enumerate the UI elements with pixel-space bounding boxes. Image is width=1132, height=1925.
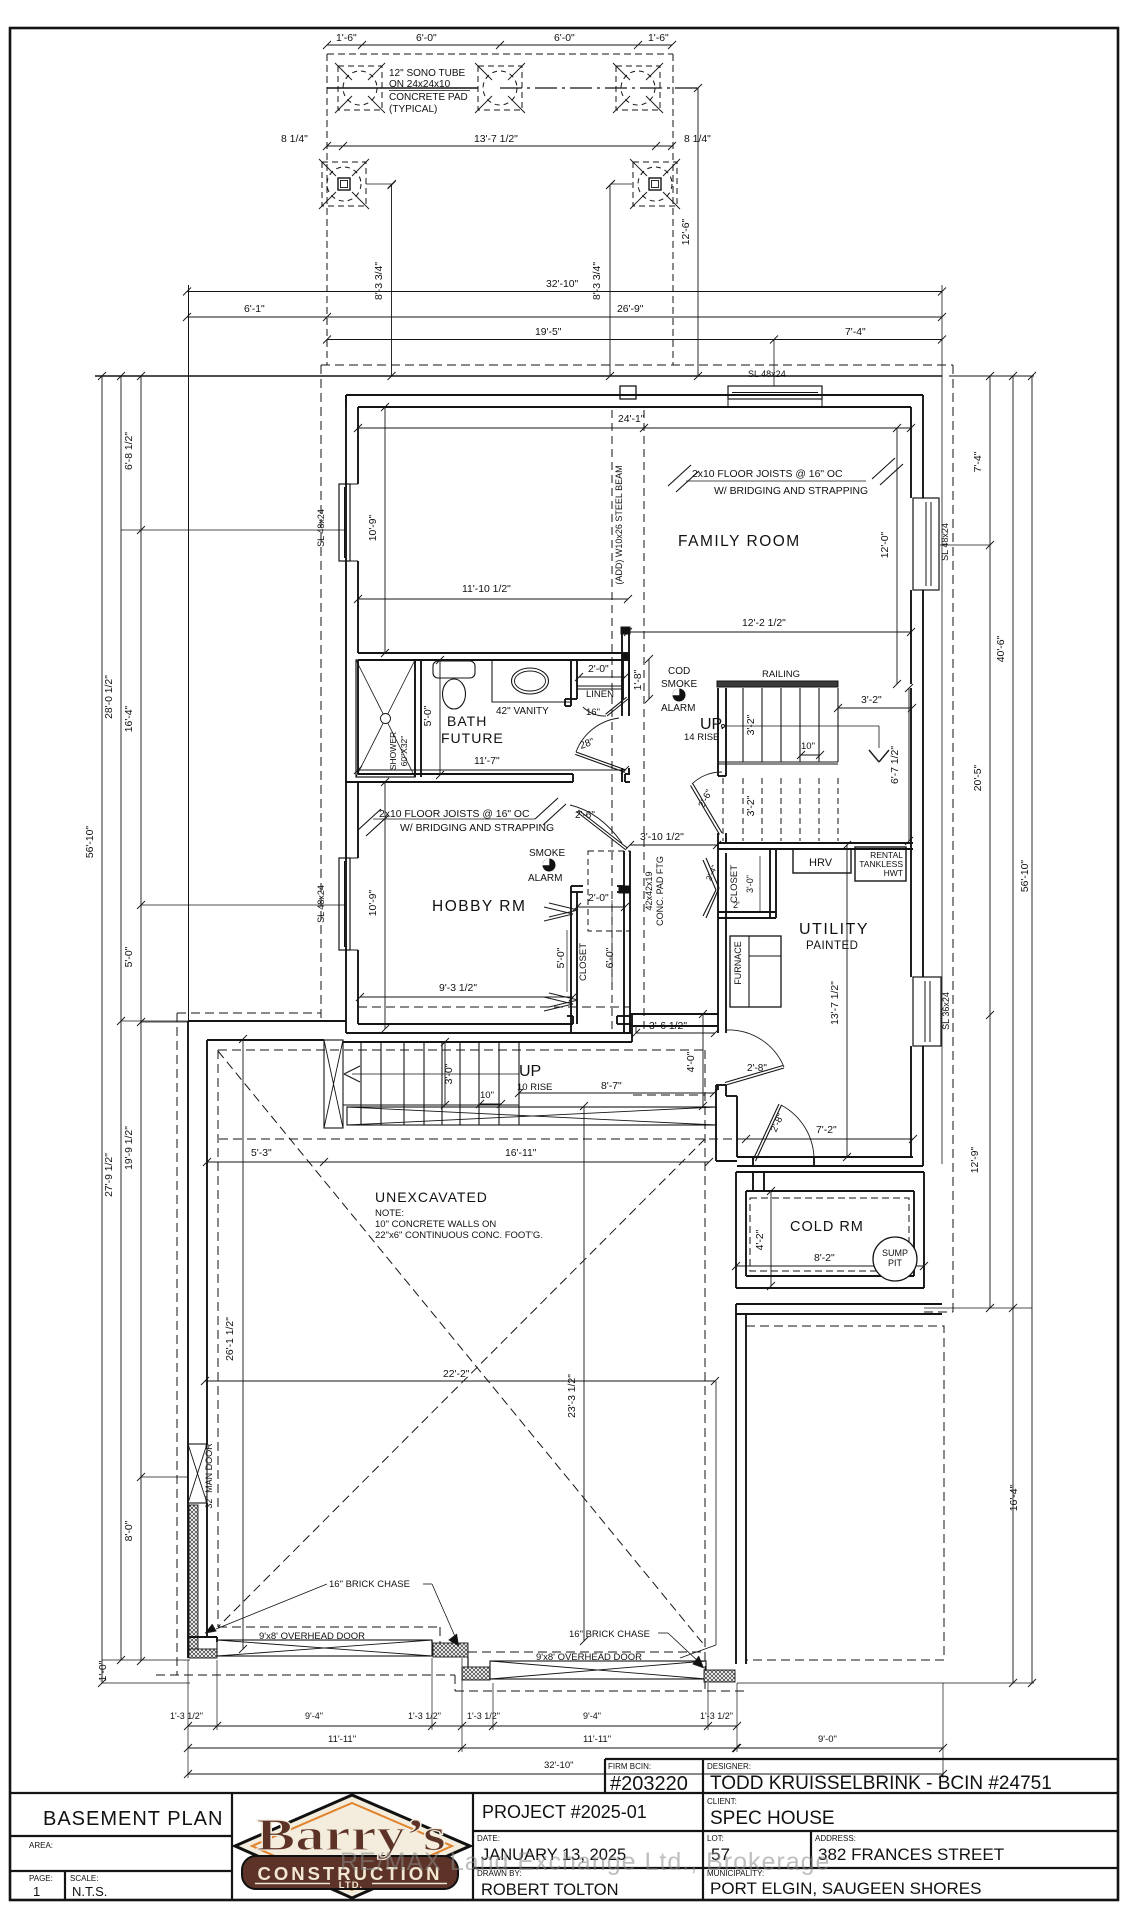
svg-text:4'-2": 4'-2" bbox=[755, 1229, 766, 1250]
svg-text:60"X32": 60"X32" bbox=[399, 736, 409, 767]
svg-text:CLOSET: CLOSET bbox=[578, 943, 589, 981]
svg-text:32" MAN DOOR: 32" MAN DOOR bbox=[204, 1443, 214, 1509]
svg-text:26'-1 1/2": 26'-1 1/2" bbox=[225, 1317, 236, 1361]
svg-text:#203220: #203220 bbox=[610, 1773, 688, 1795]
svg-text:10'-9": 10'-9" bbox=[368, 514, 379, 541]
svg-text:20'-5": 20'-5" bbox=[973, 764, 984, 791]
svg-text:5'-0": 5'-0" bbox=[423, 705, 434, 726]
svg-text:2x10 FLOOR JOISTS @ 16" OC: 2x10 FLOOR JOISTS @ 16" OC bbox=[379, 809, 530, 820]
svg-text:19'-5": 19'-5" bbox=[535, 327, 562, 338]
svg-text:ALARM: ALARM bbox=[528, 873, 562, 884]
svg-text:CLIENT:: CLIENT: bbox=[707, 1797, 737, 1806]
svg-text:AREA:: AREA: bbox=[29, 1841, 53, 1850]
svg-text:8'-3 3/4": 8'-3 3/4" bbox=[592, 262, 603, 300]
svg-text:UP.: UP. bbox=[700, 716, 725, 733]
svg-text:9'-0": 9'-0" bbox=[818, 1734, 837, 1745]
svg-text:3'-2": 3'-2" bbox=[746, 714, 757, 735]
svg-text:3'-0": 3'-0" bbox=[745, 875, 755, 893]
svg-text:SMOKE: SMOKE bbox=[661, 679, 697, 690]
svg-text:27'-9 1/2": 27'-9 1/2" bbox=[104, 1153, 115, 1197]
svg-text:42x42x19: 42x42x19 bbox=[644, 871, 654, 910]
svg-text:5'-0": 5'-0" bbox=[124, 946, 135, 967]
svg-text:ADDRESS:: ADDRESS: bbox=[815, 1834, 856, 1843]
svg-text:PORT ELGIN, SAUGEEN SHORES: PORT ELGIN, SAUGEEN SHORES bbox=[710, 1879, 981, 1898]
svg-text:40'-6": 40'-6" bbox=[996, 635, 1007, 662]
svg-text:1'-8": 1'-8" bbox=[633, 669, 644, 690]
svg-text:13'-7 1/2": 13'-7 1/2" bbox=[474, 134, 518, 145]
svg-text:TODD KRUISSELBRINK - BCIN #247: TODD KRUISSELBRINK - BCIN #24751 bbox=[710, 1773, 1052, 1794]
svg-text:9'-3 1/2": 9'-3 1/2" bbox=[439, 983, 477, 994]
svg-text:10 RISE: 10 RISE bbox=[517, 1082, 552, 1093]
svg-text:N.T.S.: N.T.S. bbox=[72, 1884, 107, 1899]
svg-text:1'-3 1/2": 1'-3 1/2" bbox=[467, 1711, 500, 1721]
svg-text:6'-1": 6'-1" bbox=[244, 304, 265, 315]
svg-text:BATH: BATH bbox=[447, 713, 487, 729]
svg-text:16" BRICK CHASE: 16" BRICK CHASE bbox=[329, 1579, 410, 1590]
svg-text:6'-0": 6'-0" bbox=[605, 947, 616, 968]
svg-text:PAINTED: PAINTED bbox=[806, 940, 859, 952]
svg-text:23'-3 1/2": 23'-3 1/2" bbox=[567, 1374, 578, 1418]
svg-text:8'-2": 8'-2" bbox=[814, 1253, 835, 1264]
svg-text:16": 16" bbox=[586, 707, 600, 718]
svg-text:32'-10": 32'-10" bbox=[546, 279, 579, 290]
svg-text:16" BRICK CHASE: 16" BRICK CHASE bbox=[569, 1629, 650, 1640]
svg-text:382 FRANCES STREET: 382 FRANCES STREET bbox=[818, 1845, 1004, 1864]
svg-text:10": 10" bbox=[480, 1090, 494, 1101]
svg-text:11'-11": 11'-11" bbox=[328, 1734, 356, 1745]
svg-text:26'-9": 26'-9" bbox=[617, 304, 644, 315]
svg-text:56'-10": 56'-10" bbox=[1020, 860, 1031, 893]
svg-text:3'-2": 3'-2" bbox=[746, 795, 757, 816]
svg-text:12'-2 1/2": 12'-2 1/2" bbox=[742, 618, 786, 629]
svg-text:COLD RM: COLD RM bbox=[790, 1219, 864, 1235]
svg-text:22'-2": 22'-2" bbox=[443, 1369, 470, 1380]
svg-text:3'-0": 3'-0" bbox=[444, 1063, 455, 1084]
svg-text:SL 48x24: SL 48x24 bbox=[748, 369, 786, 379]
svg-text:COD: COD bbox=[668, 666, 690, 677]
svg-text:NOTE:: NOTE: bbox=[375, 1208, 404, 1219]
svg-text:ALARM: ALARM bbox=[661, 703, 695, 714]
svg-text:DATE:: DATE: bbox=[477, 1834, 500, 1843]
svg-text:LINEN: LINEN bbox=[586, 689, 614, 700]
svg-text:13'-7 1/2": 13'-7 1/2" bbox=[830, 981, 841, 1025]
svg-text:SL 48x24: SL 48x24 bbox=[940, 523, 950, 561]
svg-text:10'-9": 10'-9" bbox=[368, 889, 379, 916]
svg-text:9'x8' OVERHEAD DOOR: 9'x8' OVERHEAD DOOR bbox=[536, 1652, 642, 1663]
svg-text:16'-4": 16'-4" bbox=[1009, 1484, 1020, 1511]
svg-text:CONCRETE PAD: CONCRETE PAD bbox=[389, 92, 468, 103]
svg-text:1: 1 bbox=[33, 1884, 40, 1899]
svg-text:CONC. PAD FTG: CONC. PAD FTG bbox=[655, 856, 665, 926]
svg-text:14 RISE: 14 RISE bbox=[684, 732, 719, 743]
svg-text:UP: UP bbox=[519, 1063, 541, 1080]
svg-text:42" VANITY: 42" VANITY bbox=[496, 706, 549, 717]
svg-text:7'-4": 7'-4" bbox=[845, 327, 866, 338]
svg-text:10" CONCRETE WALLS ON: 10" CONCRETE WALLS ON bbox=[375, 1219, 496, 1230]
svg-text:SUMP: SUMP bbox=[882, 1248, 908, 1258]
svg-text:5'-0": 5'-0" bbox=[556, 947, 567, 968]
svg-text:FAMILY ROOM: FAMILY ROOM bbox=[678, 533, 801, 550]
svg-text:SL 36x24: SL 36x24 bbox=[941, 992, 951, 1030]
svg-text:11'-10 1/2": 11'-10 1/2" bbox=[462, 584, 511, 595]
svg-text:FUTURE: FUTURE bbox=[441, 730, 504, 746]
svg-text:11'-11": 11'-11" bbox=[583, 1734, 611, 1745]
svg-text:UTILITY: UTILITY bbox=[799, 921, 869, 938]
svg-text:6'-0": 6'-0" bbox=[554, 33, 575, 44]
svg-text:12'-9": 12'-9" bbox=[970, 1146, 981, 1173]
svg-text:2'-6": 2'-6" bbox=[575, 810, 595, 821]
svg-text:1'-3 1/2": 1'-3 1/2" bbox=[408, 1711, 441, 1721]
svg-text:6'-7 1/2": 6'-7 1/2" bbox=[890, 746, 901, 784]
svg-text:2': 2' bbox=[733, 900, 740, 910]
svg-text:BASEMENT PLAN: BASEMENT PLAN bbox=[43, 1808, 223, 1830]
svg-text:1'-6": 1'-6" bbox=[648, 33, 669, 44]
svg-text:FIRM BCIN:: FIRM BCIN: bbox=[608, 1762, 651, 1771]
svg-text:3'-10 1/2": 3'-10 1/2" bbox=[640, 832, 684, 843]
svg-text:11'-7": 11'-7" bbox=[474, 756, 500, 767]
svg-text:19'-9 1/2": 19'-9 1/2" bbox=[124, 1126, 135, 1170]
svg-text:16'-11": 16'-11" bbox=[505, 1148, 537, 1159]
svg-text:DESIGNER:: DESIGNER: bbox=[707, 1762, 751, 1771]
svg-text:ROBERT TOLTON: ROBERT TOLTON bbox=[481, 1881, 619, 1899]
svg-text:9'-4": 9'-4" bbox=[583, 1711, 601, 1721]
svg-text:1'-0": 1'-0" bbox=[98, 1660, 109, 1681]
svg-text:ON 24x24x10: ON 24x24x10 bbox=[389, 79, 451, 90]
svg-text:SL 48x24: SL 48x24 bbox=[316, 885, 326, 923]
svg-text:8'-7": 8'-7" bbox=[601, 1081, 622, 1092]
svg-text:22"x6" CONTINUOUS CONC. FOOT'G: 22"x6" CONTINUOUS CONC. FOOT'G. bbox=[375, 1230, 543, 1241]
svg-text:W/ BRIDGING AND STRAPPING: W/ BRIDGING AND STRAPPING bbox=[714, 486, 868, 497]
svg-text:PAGE:: PAGE: bbox=[29, 1874, 53, 1883]
svg-text:LOT:: LOT: bbox=[707, 1834, 724, 1843]
svg-text:7'-2": 7'-2" bbox=[816, 1125, 837, 1136]
svg-text:28'-0 1/2": 28'-0 1/2" bbox=[104, 675, 115, 719]
svg-text:RAILING: RAILING bbox=[762, 669, 800, 680]
svg-text:12'-0": 12'-0" bbox=[880, 531, 891, 558]
svg-text:FURNACE: FURNACE bbox=[733, 941, 743, 985]
svg-text:HWT: HWT bbox=[884, 868, 903, 878]
svg-text:3'-2": 3'-2" bbox=[861, 695, 882, 706]
svg-text:LTD.: LTD. bbox=[339, 1880, 363, 1891]
svg-text:8'-0": 8'-0" bbox=[124, 1520, 135, 1541]
svg-text:12" SONO TUBE: 12" SONO TUBE bbox=[389, 68, 465, 79]
svg-text:SCALE:: SCALE: bbox=[70, 1874, 98, 1883]
svg-text:9'-4": 9'-4" bbox=[305, 1711, 323, 1721]
svg-text:7'-4": 7'-4" bbox=[973, 451, 984, 472]
svg-text:3'-6 1/2": 3'-6 1/2" bbox=[649, 1021, 687, 1032]
svg-text:PROJECT #2025-01: PROJECT #2025-01 bbox=[482, 1802, 647, 1822]
svg-text:12'-6": 12'-6" bbox=[681, 218, 692, 245]
svg-text:5'-3": 5'-3" bbox=[251, 1148, 272, 1159]
svg-text:8'-3 3/4": 8'-3 3/4" bbox=[374, 262, 385, 300]
svg-text:1'-3 1/2": 1'-3 1/2" bbox=[170, 1711, 203, 1721]
svg-text:6'-8 1/2": 6'-8 1/2" bbox=[124, 432, 135, 470]
svg-text:HRV: HRV bbox=[809, 857, 833, 869]
svg-text:6'-0": 6'-0" bbox=[416, 33, 437, 44]
svg-text:8 1/4": 8 1/4" bbox=[281, 134, 308, 145]
svg-text:UNEXCAVATED: UNEXCAVATED bbox=[375, 1189, 488, 1205]
svg-text:10": 10" bbox=[801, 741, 815, 752]
svg-text:(TYPICAL): (TYPICAL) bbox=[389, 104, 437, 115]
svg-text:56'-10": 56'-10" bbox=[85, 826, 96, 859]
svg-text:SL 48x24: SL 48x24 bbox=[316, 509, 326, 547]
svg-text:SPEC HOUSE: SPEC HOUSE bbox=[710, 1808, 835, 1829]
svg-text:W/ BRIDGING AND STRAPPING: W/ BRIDGING AND STRAPPING bbox=[400, 823, 554, 834]
svg-text:4'-0": 4'-0" bbox=[686, 1051, 697, 1072]
svg-text:RE/MAX Land Exchange Ltd., Bro: RE/MAX Land Exchange Ltd., Brokerage bbox=[340, 1848, 830, 1876]
svg-text:(ADD) W10x26 STEEL BEAM: (ADD) W10x26 STEEL BEAM bbox=[614, 465, 624, 584]
svg-text:1'-6": 1'-6" bbox=[336, 33, 357, 44]
svg-text:HOBBY RM: HOBBY RM bbox=[432, 898, 526, 915]
svg-text:PIT: PIT bbox=[888, 1258, 903, 1268]
svg-text:2'-0": 2'-0" bbox=[588, 664, 609, 675]
svg-text:9'x8' OVERHEAD DOOR: 9'x8' OVERHEAD DOOR bbox=[259, 1631, 365, 1642]
svg-text:2x10 FLOOR JOISTS @ 16" OC: 2x10 FLOOR JOISTS @ 16" OC bbox=[692, 469, 843, 480]
svg-text:CLOSET: CLOSET bbox=[729, 865, 740, 903]
svg-text:24'-1": 24'-1" bbox=[618, 414, 645, 425]
svg-text:16'-4": 16'-4" bbox=[124, 705, 135, 732]
svg-text:32'-10": 32'-10" bbox=[544, 1760, 573, 1771]
svg-text:2'-8": 2'-8" bbox=[747, 1063, 767, 1074]
svg-text:2'-0": 2'-0" bbox=[588, 893, 609, 904]
svg-text:SHOWER: SHOWER bbox=[388, 732, 398, 770]
svg-text:1'-3 1/2": 1'-3 1/2" bbox=[700, 1711, 733, 1721]
svg-text:SMOKE: SMOKE bbox=[529, 848, 565, 859]
